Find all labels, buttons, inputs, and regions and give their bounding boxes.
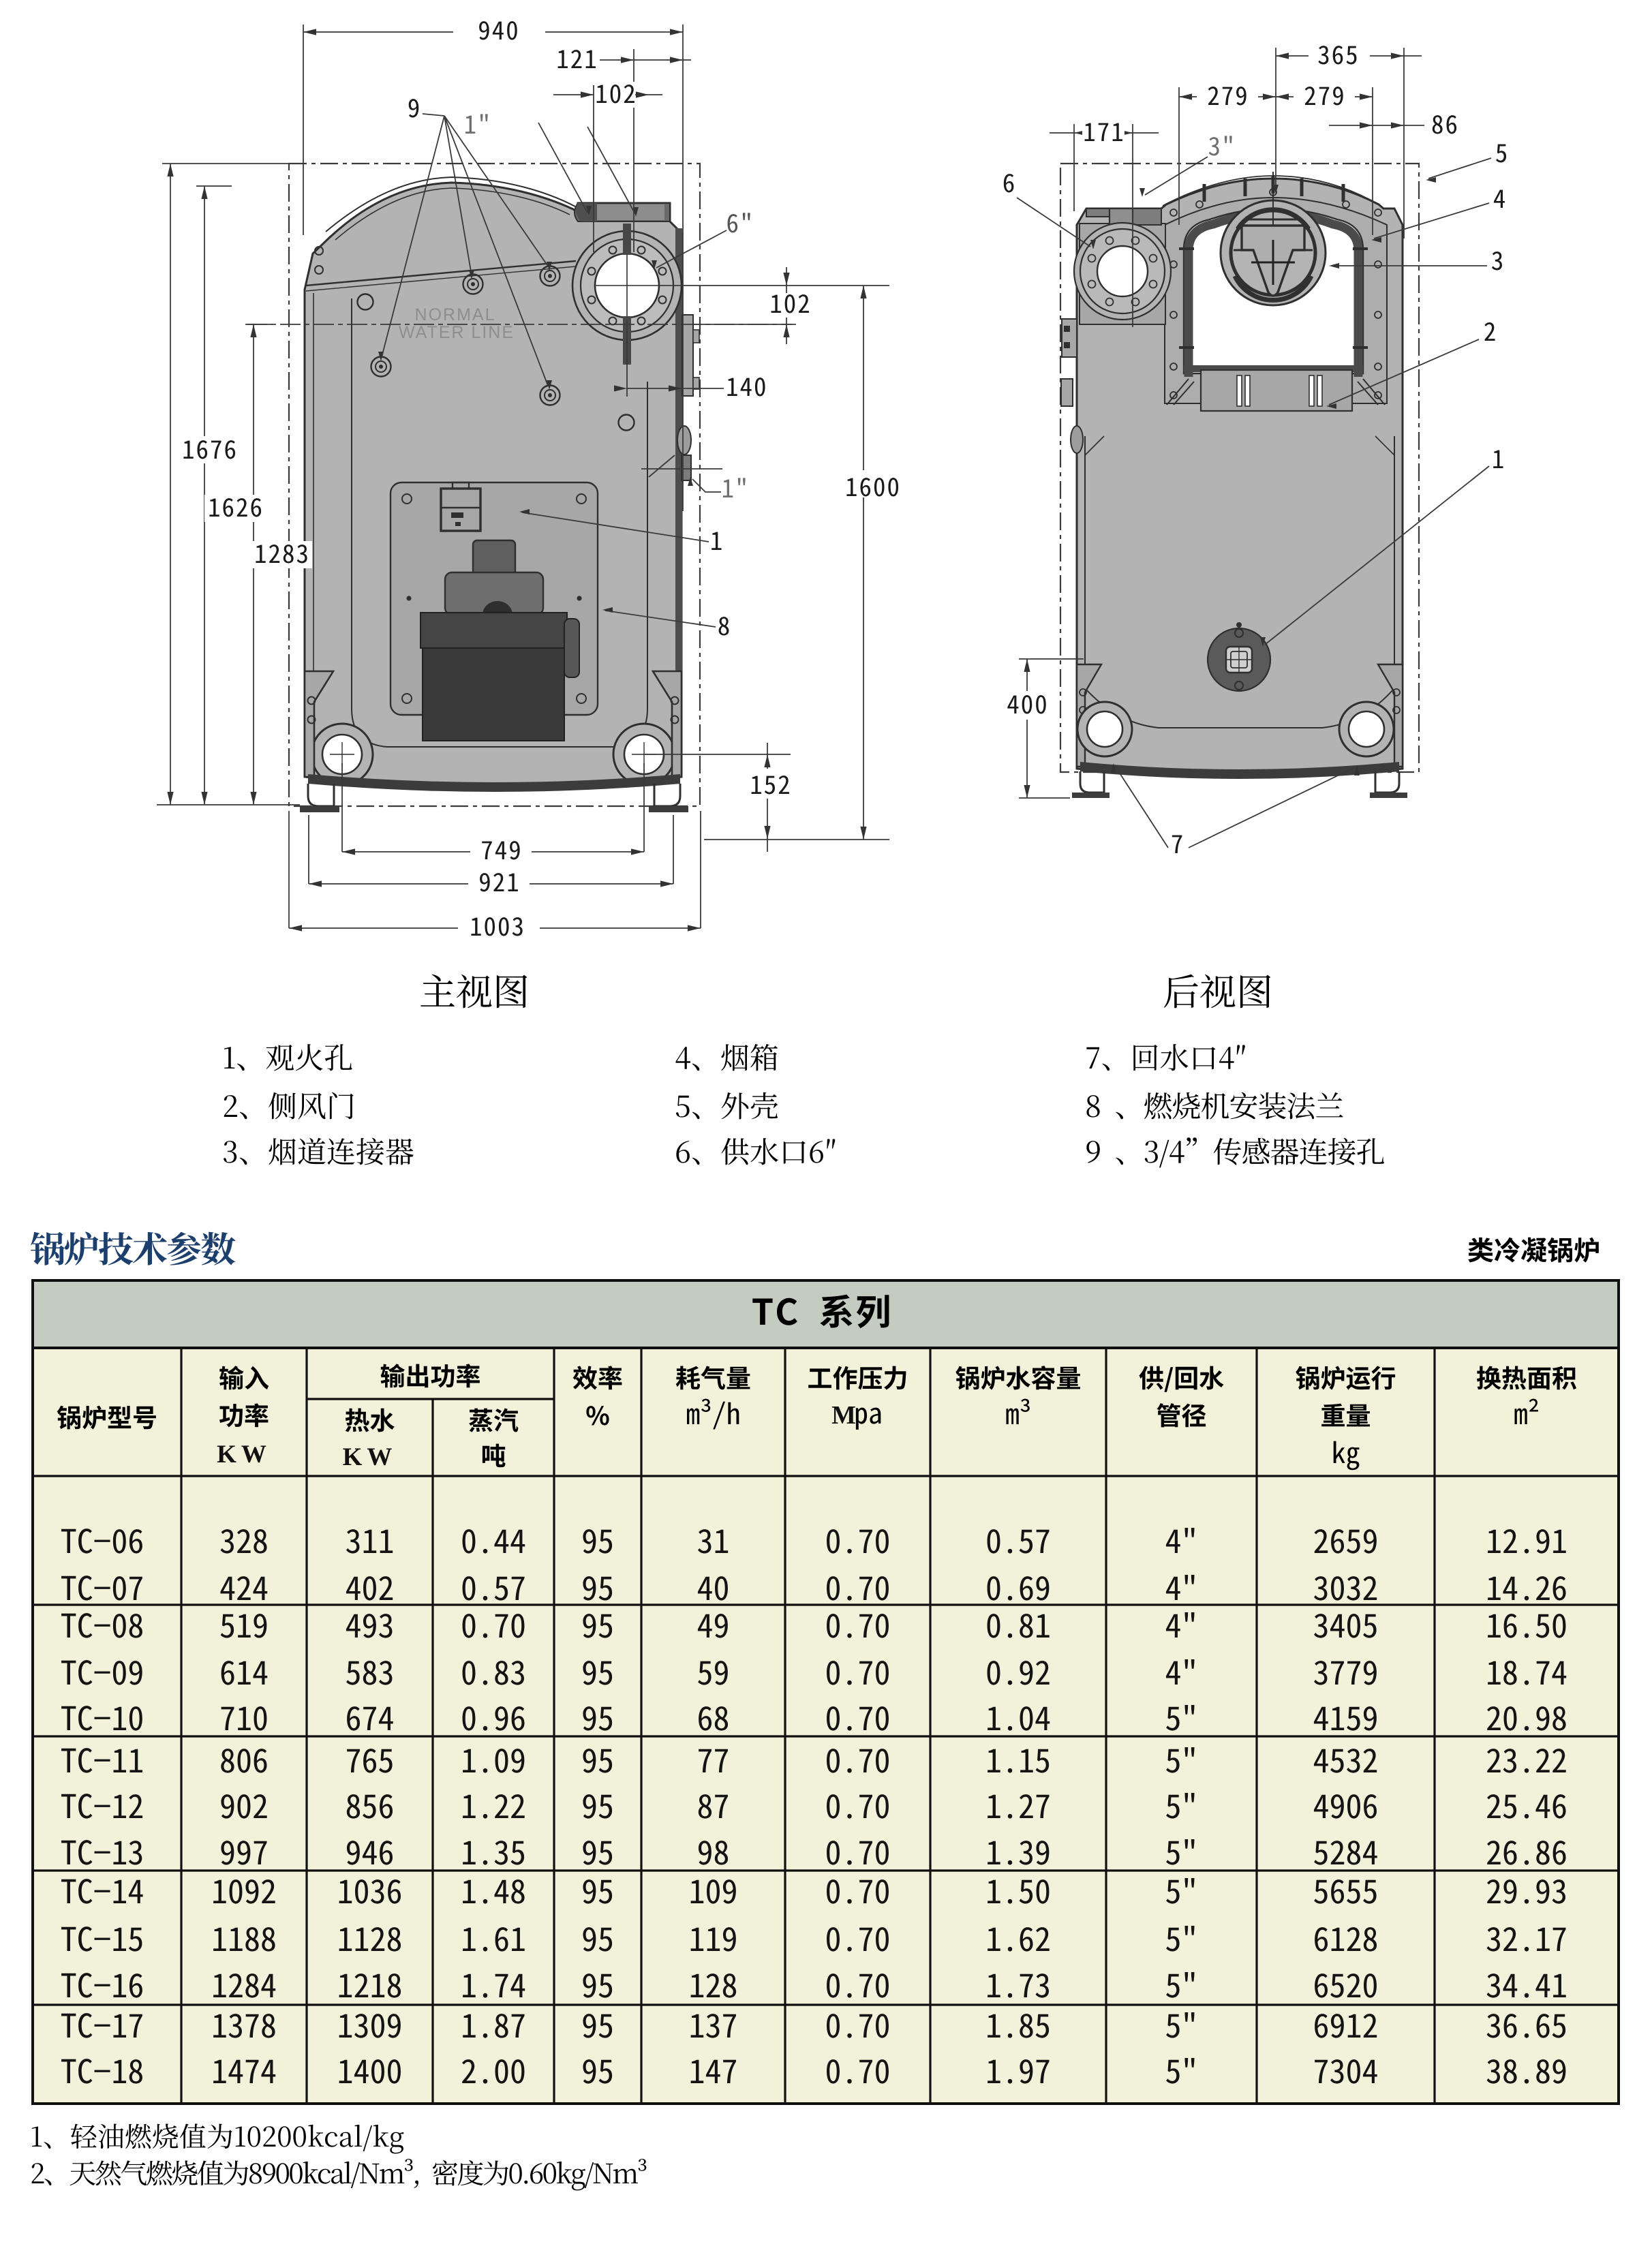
svg-text:KW: KW: [343, 1443, 397, 1471]
svg-text:WATER LINE: WATER LINE: [399, 323, 515, 342]
svg-text:NORMAL: NORMAL: [415, 305, 496, 324]
svg-text:M: M: [831, 1401, 856, 1430]
svg-text:KW: KW: [217, 1441, 271, 1469]
